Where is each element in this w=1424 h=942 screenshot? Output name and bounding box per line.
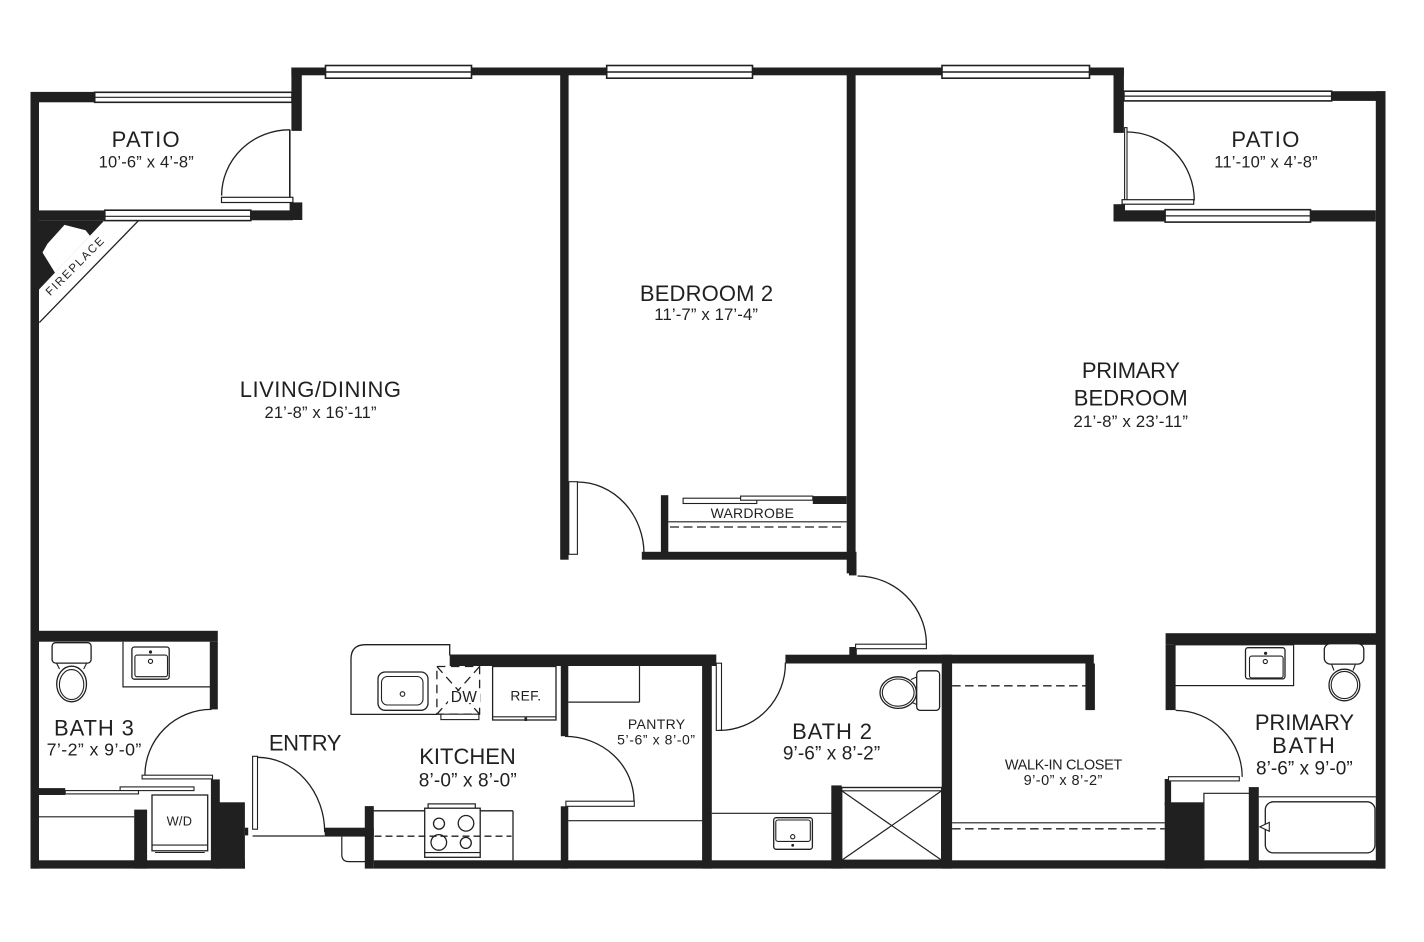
svg-text:W/D: W/D <box>167 814 192 829</box>
svg-text:LIVING/DINING: LIVING/DINING <box>240 377 402 402</box>
svg-text:PATIO: PATIO <box>112 127 181 152</box>
svg-text:PRIMARY: PRIMARY <box>1082 358 1180 383</box>
svg-text:21’-8” x 23’-11”: 21’-8” x 23’-11” <box>1073 412 1188 431</box>
svg-text:WALK-IN CLOSET: WALK-IN CLOSET <box>1005 758 1123 774</box>
svg-text:DW: DW <box>451 689 477 706</box>
svg-text:11’-7” x 17’-4”: 11’-7” x 17’-4” <box>654 305 758 324</box>
svg-text:10’-6” x 4’-8”: 10’-6” x 4’-8” <box>99 154 194 172</box>
svg-text:7’-2” x 9’-0”: 7’-2” x 9’-0” <box>47 740 142 760</box>
svg-text:BEDROOM 2: BEDROOM 2 <box>640 281 773 306</box>
svg-text:9’-6” x 8’-2”: 9’-6” x 8’-2” <box>783 743 880 764</box>
svg-text:21’-8” x 16’-11”: 21’-8” x 16’-11” <box>265 404 377 422</box>
svg-text:BATH: BATH <box>1272 733 1337 758</box>
svg-text:8’-0” x 8’-0”: 8’-0” x 8’-0” <box>419 771 517 792</box>
svg-text:WARDROBE: WARDROBE <box>711 505 795 521</box>
svg-text:PATIO: PATIO <box>1231 127 1300 152</box>
svg-text:8’-6” x 9’-0”: 8’-6” x 9’-0” <box>1256 758 1353 779</box>
svg-text:9’-0” x 8’-2”: 9’-0” x 8’-2” <box>1024 773 1103 789</box>
svg-text:BATH 3: BATH 3 <box>54 715 135 740</box>
svg-text:5’-6” x 8’-0”: 5’-6” x 8’-0” <box>617 731 696 747</box>
svg-text:11’-10” x 4’-8”: 11’-10” x 4’-8” <box>1214 154 1318 172</box>
svg-text:PANTRY: PANTRY <box>628 716 686 732</box>
svg-text:KITCHEN: KITCHEN <box>419 744 516 769</box>
svg-text:REF.: REF. <box>510 688 541 703</box>
svg-text:BATH 2: BATH 2 <box>792 719 873 744</box>
svg-text:BEDROOM: BEDROOM <box>1074 386 1188 411</box>
svg-text:ENTRY: ENTRY <box>269 730 342 755</box>
svg-text:PRIMARY: PRIMARY <box>1255 710 1355 735</box>
